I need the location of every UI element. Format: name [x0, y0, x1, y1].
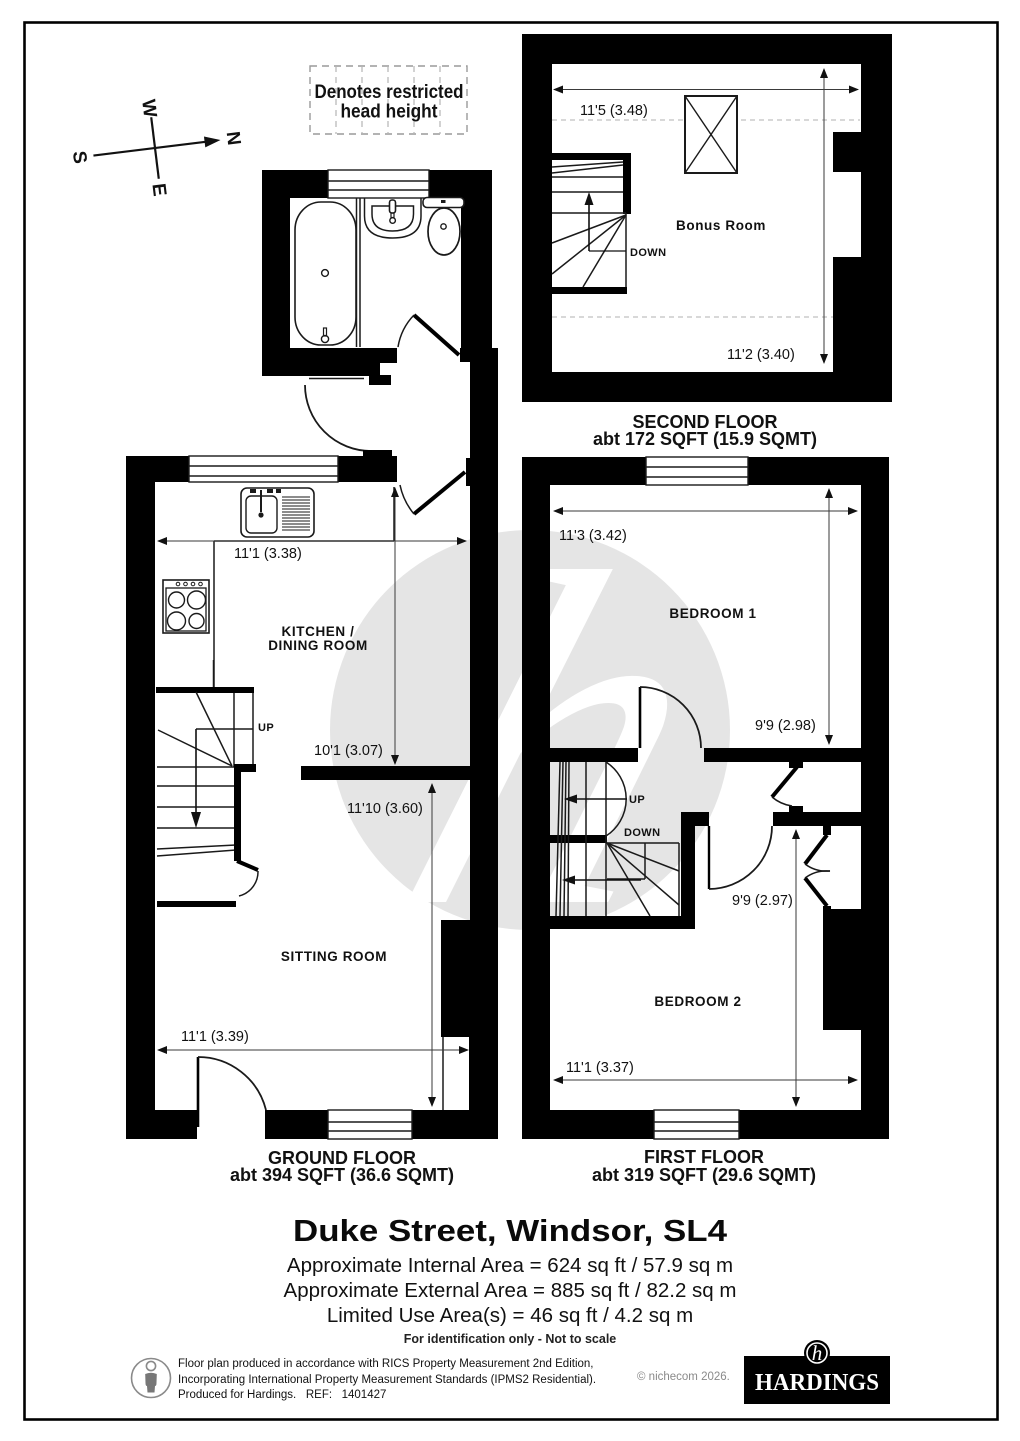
svg-text:HARDINGS: HARDINGS — [755, 1370, 879, 1396]
svg-text:9'9 (2.98): 9'9 (2.98) — [755, 718, 816, 734]
svg-text:abt 172 SQFT (15.9 SQMT): abt 172 SQFT (15.9 SQMT) — [593, 429, 817, 449]
svg-text:BEDROOM 1: BEDROOM 1 — [669, 606, 756, 621]
svg-text:abt 319 SQFT (29.6 SQMT): abt 319 SQFT (29.6 SQMT) — [592, 1165, 816, 1185]
svg-text:Limited Use Area(s) = 46 sq ft: Limited Use Area(s) = 46 sq ft / 4.2 sq … — [327, 1304, 693, 1327]
svg-text:© nichecom 2026.: © nichecom 2026. — [637, 1371, 730, 1383]
svg-text:abt 394 SQFT (36.6 SQMT): abt 394 SQFT (36.6 SQMT) — [230, 1165, 454, 1185]
svg-text:DINING ROOM: DINING ROOM — [268, 638, 368, 653]
svg-text:10'1 (3.07): 10'1 (3.07) — [314, 743, 383, 759]
svg-text:Produced for Hardings. REF:: Produced for Hardings. REF: 1401427 — [178, 1389, 386, 1401]
svg-text:11'10 (3.60): 11'10 (3.60) — [347, 801, 423, 817]
svg-text:S: S — [68, 150, 90, 165]
svg-text:11'2 (3.40): 11'2 (3.40) — [727, 347, 795, 363]
svg-text:Incorporating International Pr: Incorporating International Property Mea… — [178, 1374, 596, 1386]
svg-text:W: W — [137, 98, 160, 118]
svg-text:KITCHEN /: KITCHEN / — [282, 624, 355, 639]
svg-text:BEDROOM 2: BEDROOM 2 — [654, 994, 741, 1009]
svg-text:UP: UP — [258, 722, 274, 734]
svg-text:DOWN: DOWN — [630, 247, 666, 259]
svg-text:DOWN: DOWN — [624, 827, 660, 839]
svg-text:FIRST FLOOR: FIRST FLOOR — [644, 1147, 764, 1167]
svg-text:SITTING ROOM: SITTING ROOM — [281, 949, 387, 964]
svg-text:11'1 (3.38): 11'1 (3.38) — [234, 546, 302, 562]
svg-text:N: N — [222, 130, 245, 146]
svg-text:h: h — [812, 1341, 823, 1365]
svg-text:9'9 (2.97): 9'9 (2.97) — [732, 893, 793, 909]
svg-text:11'1 (3.37): 11'1 (3.37) — [566, 1060, 634, 1076]
svg-text:Duke Street, Windsor, SL4: Duke Street, Windsor, SL4 — [293, 1213, 728, 1248]
svg-text:Floor plan produced in accorda: Floor plan produced in accordance with R… — [178, 1358, 594, 1370]
svg-text:11'5 (3.48): 11'5 (3.48) — [580, 103, 648, 119]
svg-text:Approximate Internal Area = 62: Approximate Internal Area = 624 sq ft / … — [287, 1254, 733, 1277]
svg-text:11'1 (3.39): 11'1 (3.39) — [181, 1029, 249, 1045]
svg-text:Bonus Room: Bonus Room — [676, 218, 766, 233]
svg-text:E: E — [147, 182, 169, 197]
svg-text:Approximate External Area = 88: Approximate External Area = 885 sq ft / … — [284, 1279, 737, 1302]
svg-text:11'3 (3.42): 11'3 (3.42) — [559, 528, 627, 544]
svg-text:head height: head height — [341, 101, 438, 123]
svg-text:For identification only - Not: For identification only - Not to scale — [404, 1332, 617, 1346]
svg-text:UP: UP — [629, 794, 645, 806]
